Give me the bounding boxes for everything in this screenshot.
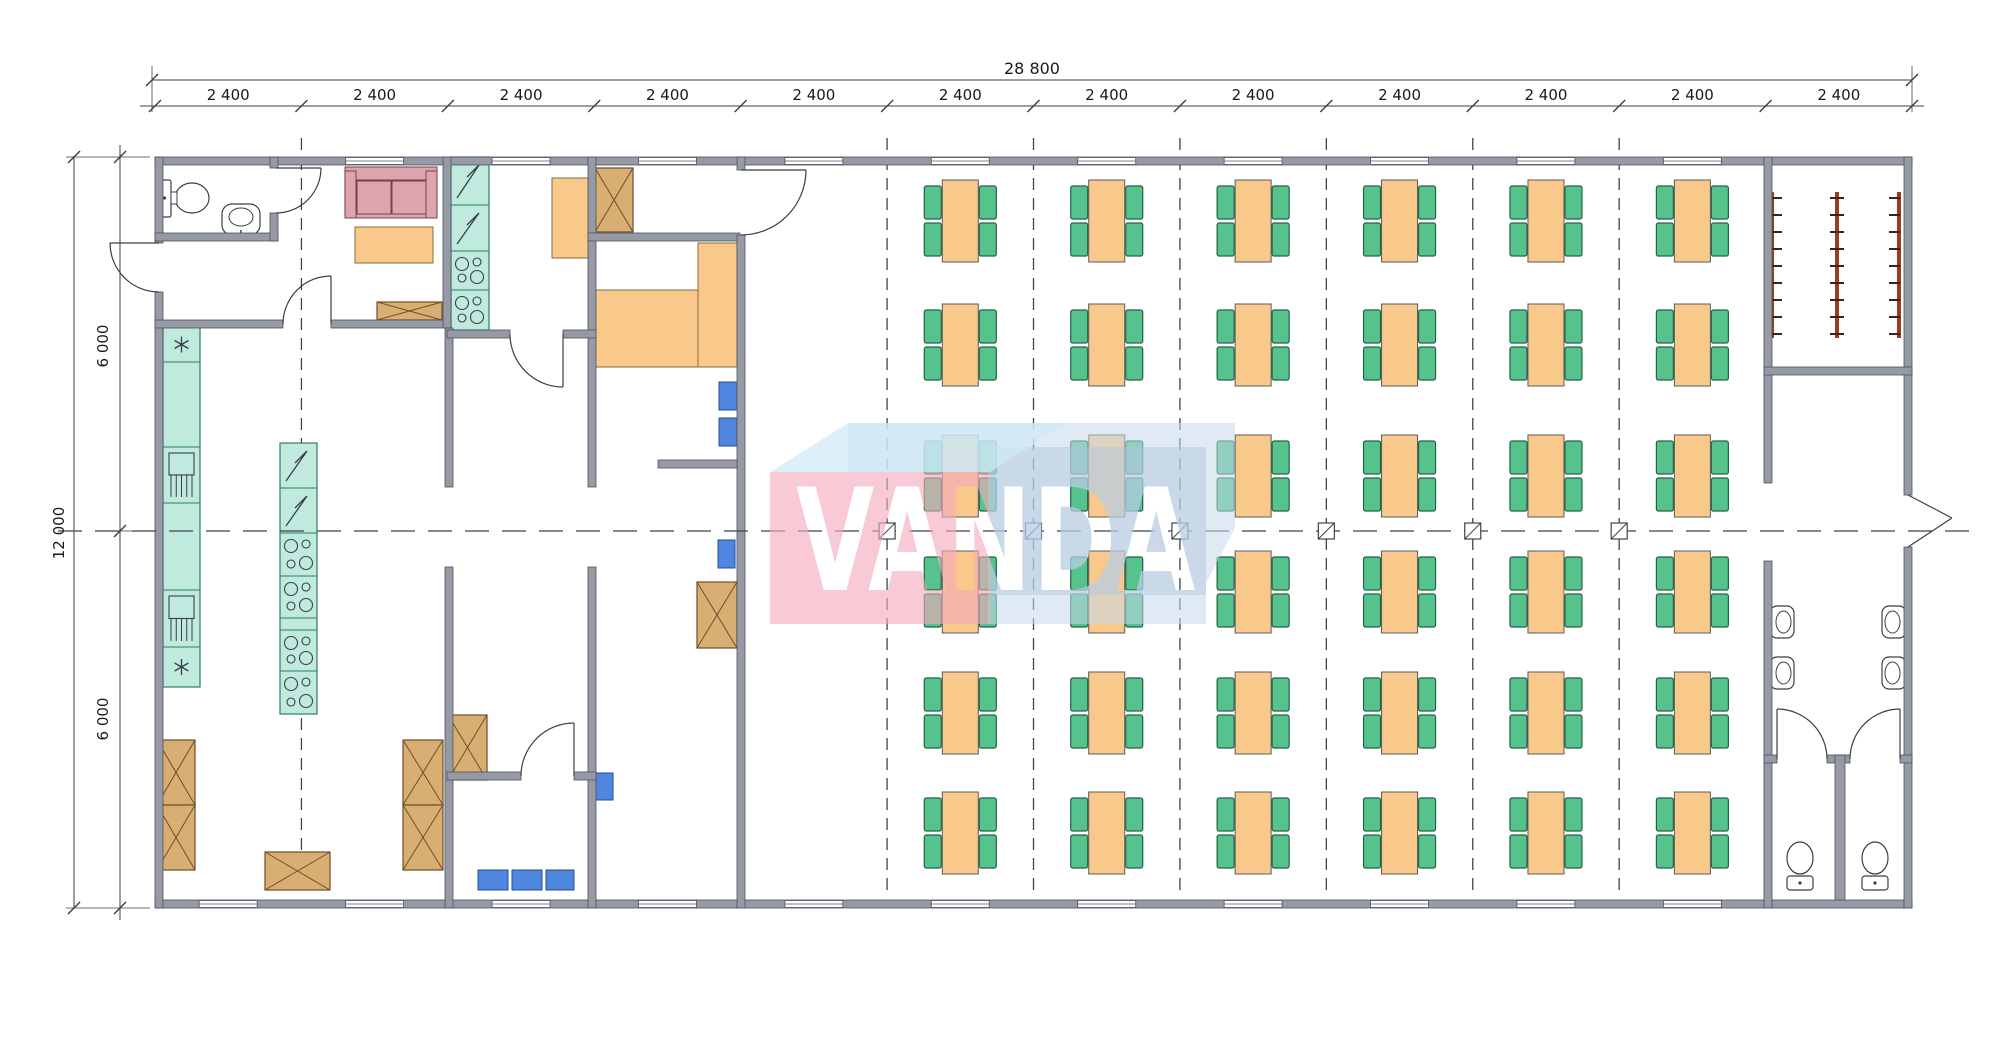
dining-chair <box>1510 186 1527 219</box>
dining-chair <box>1510 798 1527 831</box>
wall <box>155 233 278 241</box>
dining-table-group <box>1071 180 1143 262</box>
dining-table <box>942 304 978 386</box>
dining-chair <box>1272 798 1289 831</box>
door-swing <box>1777 709 1827 759</box>
dining-table-group <box>1510 304 1582 386</box>
dining-table-group <box>1656 435 1728 517</box>
wall <box>588 157 596 333</box>
dining-table-group <box>1217 551 1289 633</box>
worktop-table <box>552 178 590 258</box>
dining-table <box>1674 792 1710 874</box>
dining-chair <box>1565 678 1582 711</box>
toilet-flush-button <box>1798 881 1801 884</box>
dining-table-group <box>924 672 996 754</box>
dining-table <box>1235 304 1271 386</box>
dining-chair <box>1711 347 1728 380</box>
dim-total-height: 12 000 <box>50 507 68 560</box>
blue-seat <box>546 870 574 890</box>
dining-chair <box>1656 798 1673 831</box>
dining-table-group <box>1656 551 1728 633</box>
wall <box>1835 755 1845 900</box>
dining-chair <box>1419 186 1436 219</box>
dining-table <box>942 180 978 262</box>
dining-chair <box>1071 715 1088 748</box>
dining-chair <box>1419 347 1436 380</box>
dining-chair <box>1565 715 1582 748</box>
dining-table-group <box>1071 304 1143 386</box>
dining-table-group <box>1364 435 1436 517</box>
floor-plan: VANDA 28 800 12 000 6 000 6 000 2 4002 4… <box>0 0 2000 1041</box>
door-swing <box>283 276 331 324</box>
door-swing <box>521 723 574 776</box>
dining-chair <box>979 186 996 219</box>
dining-chair <box>1711 441 1728 474</box>
dining-chair <box>1565 186 1582 219</box>
wall <box>270 213 278 241</box>
dining-chair <box>1565 798 1582 831</box>
dining-chair <box>1565 347 1582 380</box>
dining-table <box>1528 435 1564 517</box>
dim-height-segment-1: 6 000 <box>94 325 112 368</box>
dim-bay-width: 2 400 <box>939 86 982 104</box>
dining-chair <box>924 186 941 219</box>
dining-chair <box>1217 347 1234 380</box>
wall <box>447 772 521 780</box>
dining-chair <box>1656 347 1673 380</box>
dining-table <box>1382 551 1418 633</box>
dining-chair <box>1656 478 1673 511</box>
dining-chair <box>1510 310 1527 343</box>
dining-chair <box>1217 223 1234 256</box>
dining-chair <box>979 835 996 868</box>
dining-table <box>1382 435 1418 517</box>
watermark-logo <box>770 423 1235 624</box>
dining-chair <box>1419 223 1436 256</box>
dining-table-group <box>1217 672 1289 754</box>
dining-chair <box>1711 186 1728 219</box>
worktop-table <box>698 243 737 367</box>
dining-table <box>1235 672 1271 754</box>
dining-chair <box>1126 223 1143 256</box>
dining-table <box>1674 551 1710 633</box>
dining-chair <box>1126 347 1143 380</box>
dining-chair <box>924 678 941 711</box>
dining-table <box>1382 672 1418 754</box>
dining-chair <box>1510 441 1527 474</box>
dining-chair <box>1071 678 1088 711</box>
dining-chair <box>979 715 996 748</box>
dining-chair <box>1711 715 1728 748</box>
dining-chair <box>1364 347 1381 380</box>
door-swing <box>510 334 563 387</box>
floor-plan-canvas: VANDA 28 800 12 000 6 000 6 000 2 4002 4… <box>0 0 2000 1041</box>
dining-table-group <box>924 792 996 874</box>
dining-table <box>1382 792 1418 874</box>
dining-chair <box>1126 186 1143 219</box>
dining-chair <box>1656 186 1673 219</box>
wall <box>155 292 163 908</box>
dining-chair <box>1419 594 1436 627</box>
dining-table <box>1528 792 1564 874</box>
dining-chair <box>1510 715 1527 748</box>
dining-chair <box>1565 441 1582 474</box>
dining-table <box>1235 435 1271 517</box>
wall <box>1764 561 1772 908</box>
wall <box>445 567 453 908</box>
door-swing <box>1908 495 1952 547</box>
dining-chair <box>1656 557 1673 590</box>
dining-table-group <box>1217 180 1289 262</box>
dining-chair <box>1656 441 1673 474</box>
dining-chair <box>1510 223 1527 256</box>
blue-seat <box>719 418 737 446</box>
wall <box>155 157 1912 165</box>
dining-chair <box>1656 310 1673 343</box>
dining-chair <box>1364 310 1381 343</box>
toilet-bowl <box>1862 842 1888 874</box>
wall <box>1764 367 1912 375</box>
wall <box>737 157 745 170</box>
dining-chair <box>1419 310 1436 343</box>
dim-bay-width: 2 400 <box>792 86 835 104</box>
watermark-arrow-core <box>990 447 1206 595</box>
blue-seat <box>512 870 542 890</box>
toilet-bowl <box>175 183 209 213</box>
dining-chair <box>1364 715 1381 748</box>
wall <box>588 333 596 487</box>
dining-table <box>1235 551 1271 633</box>
kitchen-counter <box>280 443 317 714</box>
dining-table <box>942 792 978 874</box>
dining-chair <box>1419 678 1436 711</box>
dining-table <box>1528 551 1564 633</box>
dining-chair <box>1272 223 1289 256</box>
wall <box>1904 547 1912 908</box>
wall <box>155 157 163 243</box>
sofa-armrest <box>345 171 356 218</box>
wall <box>574 772 596 780</box>
dining-chair <box>1510 347 1527 380</box>
dining-chair <box>979 310 996 343</box>
dining-chair <box>979 798 996 831</box>
wall <box>1764 755 1777 763</box>
dining-chair <box>1364 223 1381 256</box>
dining-chair <box>1565 594 1582 627</box>
dining-table <box>1089 180 1125 262</box>
wall <box>443 157 451 328</box>
dining-chair <box>1272 478 1289 511</box>
dining-table <box>1528 672 1564 754</box>
dining-chair <box>1565 835 1582 868</box>
dining-chair <box>1419 798 1436 831</box>
dining-chair <box>1364 441 1381 474</box>
dining-chair <box>1510 835 1527 868</box>
dining-chair <box>1217 835 1234 868</box>
dining-table <box>1528 304 1564 386</box>
dining-chair <box>979 347 996 380</box>
dining-chair <box>1510 478 1527 511</box>
dining-chair <box>1126 310 1143 343</box>
dining-chair <box>1272 594 1289 627</box>
dim-bay-width: 2 400 <box>1817 86 1860 104</box>
dining-chair <box>924 310 941 343</box>
dining-chair <box>1510 594 1527 627</box>
dining-chair <box>1510 557 1527 590</box>
dining-chair <box>1071 347 1088 380</box>
worktop-table <box>595 290 698 367</box>
blue-seat <box>719 382 737 410</box>
dining-table-group <box>1510 435 1582 517</box>
dining-chair <box>1272 715 1289 748</box>
dining-chair <box>1711 223 1728 256</box>
dining-chair <box>1510 678 1527 711</box>
dining-table-group <box>1364 672 1436 754</box>
dining-chair <box>1419 441 1436 474</box>
dining-table <box>1674 304 1710 386</box>
dining-chair <box>1711 594 1728 627</box>
dining-table-group <box>1364 180 1436 262</box>
dim-bay-width: 2 400 <box>1524 86 1567 104</box>
dining-table-group <box>1510 792 1582 874</box>
dining-table <box>1089 792 1125 874</box>
dining-chair <box>1364 798 1381 831</box>
wall <box>1764 157 1772 483</box>
dining-chair <box>1364 478 1381 511</box>
dining-chair <box>1711 678 1728 711</box>
blue-seat <box>478 870 508 890</box>
door-swing <box>1850 709 1900 759</box>
door-swing <box>276 168 321 213</box>
dining-table <box>942 672 978 754</box>
dining-chair <box>1126 798 1143 831</box>
dining-table-group <box>1364 304 1436 386</box>
dining-table-group <box>1510 672 1582 754</box>
dining-chair <box>1711 478 1728 511</box>
dining-chair <box>1217 557 1234 590</box>
dining-table-group <box>1656 304 1728 386</box>
dining-chair <box>1565 478 1582 511</box>
sofa-armrest <box>426 171 437 218</box>
dining-chair <box>1217 678 1234 711</box>
dining-chair <box>1071 835 1088 868</box>
wall <box>331 320 451 328</box>
dining-chair <box>1272 557 1289 590</box>
dining-table-group <box>1071 672 1143 754</box>
dining-table-group <box>1364 792 1436 874</box>
watermark-box <box>770 472 990 624</box>
dim-bay-width: 2 400 <box>353 86 396 104</box>
toilet-bowl <box>1787 842 1813 874</box>
wall <box>155 900 1912 908</box>
wall <box>1900 755 1912 763</box>
dim-bay-width: 2 400 <box>1671 86 1714 104</box>
wall <box>270 157 278 168</box>
dining-chair <box>924 223 941 256</box>
dining-table-group <box>924 180 996 262</box>
dining-chair <box>1656 223 1673 256</box>
dining-chair <box>979 678 996 711</box>
dim-bay-width: 2 400 <box>207 86 250 104</box>
dining-chair <box>1071 798 1088 831</box>
dining-chair <box>1272 835 1289 868</box>
dining-chair <box>1364 678 1381 711</box>
dining-chair <box>1272 347 1289 380</box>
dining-chair <box>1217 715 1234 748</box>
dining-chair <box>1711 798 1728 831</box>
dining-chair <box>924 835 941 868</box>
dining-table-group <box>1510 551 1582 633</box>
dining-chair <box>1711 835 1728 868</box>
dining-table-group <box>1364 551 1436 633</box>
wall <box>563 330 596 338</box>
wall <box>447 330 510 338</box>
dining-chair <box>1126 835 1143 868</box>
toilet-seat-hinge <box>171 192 177 204</box>
dining-chair <box>1419 835 1436 868</box>
dining-chair <box>1071 310 1088 343</box>
dining-table-group <box>1217 792 1289 874</box>
dining-chair <box>1565 557 1582 590</box>
dining-chair <box>1364 594 1381 627</box>
dining-table-group <box>924 304 996 386</box>
dining-table <box>1089 304 1125 386</box>
dining-chair <box>1071 186 1088 219</box>
dining-chair <box>1364 557 1381 590</box>
dim-bay-width: 2 400 <box>1085 86 1128 104</box>
dim-total-width: 28 800 <box>1004 59 1060 78</box>
sofa-cushion <box>357 181 391 214</box>
dining-table <box>1089 672 1125 754</box>
dining-table-group <box>1510 180 1582 262</box>
dining-chair <box>1419 557 1436 590</box>
dining-table-group <box>1656 180 1728 262</box>
dim-height-segment-2: 6 000 <box>94 698 112 741</box>
worktop-table <box>355 227 433 263</box>
sofa-back <box>345 167 437 180</box>
dining-table-group <box>1217 304 1289 386</box>
dining-chair <box>924 347 941 380</box>
dining-table <box>1382 180 1418 262</box>
dining-table <box>1382 304 1418 386</box>
dining-chair <box>1656 715 1673 748</box>
wall <box>737 235 745 908</box>
dining-chair <box>1217 186 1234 219</box>
dim-bay-width: 2 400 <box>1378 86 1421 104</box>
dim-bay-width: 2 400 <box>1232 86 1275 104</box>
dining-chair <box>1071 223 1088 256</box>
dining-chair <box>1656 678 1673 711</box>
wall <box>1904 157 1912 495</box>
dining-table <box>1528 180 1564 262</box>
dining-chair <box>1217 594 1234 627</box>
dining-table <box>1674 435 1710 517</box>
dim-bay-width: 2 400 <box>500 86 543 104</box>
dining-chair <box>1272 186 1289 219</box>
toilet-flush-button <box>1873 881 1876 884</box>
dining-chair <box>1272 678 1289 711</box>
dining-table <box>1674 672 1710 754</box>
dining-chair <box>1126 715 1143 748</box>
dining-chair <box>1364 186 1381 219</box>
sofa-cushion <box>392 181 426 214</box>
wall <box>658 460 740 468</box>
dining-chair <box>1656 835 1673 868</box>
dining-chair <box>1419 478 1436 511</box>
dining-chair <box>1272 310 1289 343</box>
wall <box>445 328 453 487</box>
dining-table-group <box>1656 672 1728 754</box>
blue-seat <box>718 540 735 568</box>
dining-table <box>1235 792 1271 874</box>
dining-chair <box>1565 223 1582 256</box>
wall <box>155 320 283 328</box>
dining-table <box>1235 180 1271 262</box>
dining-chair <box>1272 441 1289 474</box>
dining-chair <box>1656 594 1673 627</box>
dining-chair <box>1217 798 1234 831</box>
dining-table <box>1674 180 1710 262</box>
dining-chair <box>1711 310 1728 343</box>
wall <box>588 567 596 908</box>
dining-chair <box>924 715 941 748</box>
door-swing <box>741 170 806 235</box>
dining-chair <box>924 798 941 831</box>
door-swing <box>110 243 159 292</box>
dining-table-group <box>1071 792 1143 874</box>
dining-table-group <box>1656 792 1728 874</box>
dim-bay-width: 2 400 <box>646 86 689 104</box>
dining-chair <box>1565 310 1582 343</box>
dining-chair <box>1419 715 1436 748</box>
dining-chair <box>1364 835 1381 868</box>
wall <box>588 233 740 241</box>
dining-chair <box>1126 678 1143 711</box>
dining-chair <box>1711 557 1728 590</box>
dining-chair <box>979 223 996 256</box>
dining-chair <box>1217 310 1234 343</box>
